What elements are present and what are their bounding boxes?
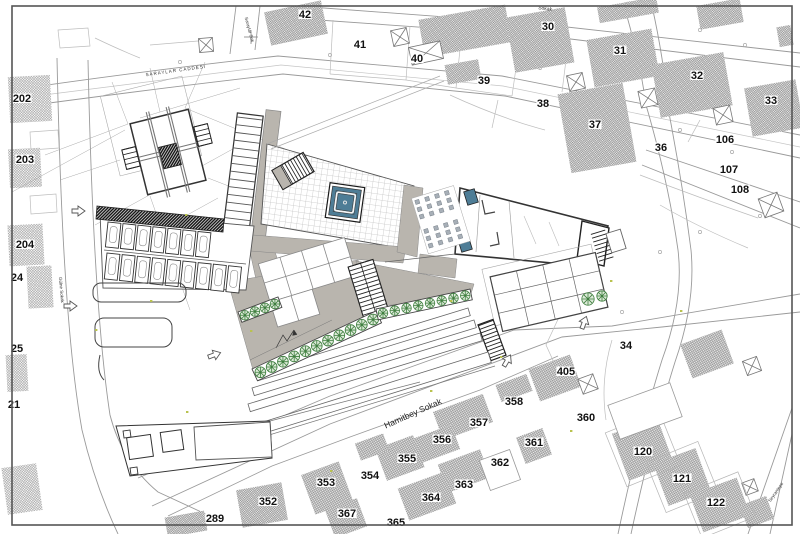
svg-text:120: 120 bbox=[634, 446, 652, 458]
svg-text:353: 353 bbox=[317, 477, 335, 489]
svg-text:352: 352 bbox=[259, 496, 277, 508]
svg-text:107: 107 bbox=[720, 164, 738, 176]
svg-text:36: 36 bbox=[655, 142, 667, 154]
svg-text:203: 203 bbox=[16, 154, 34, 166]
svg-text:289: 289 bbox=[206, 513, 224, 525]
svg-text:42: 42 bbox=[299, 9, 311, 21]
svg-text:357: 357 bbox=[470, 417, 488, 429]
svg-text:24: 24 bbox=[11, 272, 24, 284]
svg-text:32: 32 bbox=[691, 70, 703, 82]
svg-text:405: 405 bbox=[557, 366, 575, 378]
svg-text:34: 34 bbox=[620, 340, 633, 352]
svg-text:354: 354 bbox=[361, 470, 380, 482]
svg-text:38: 38 bbox=[537, 98, 549, 110]
svg-text:361: 361 bbox=[525, 437, 543, 449]
svg-text:33: 33 bbox=[765, 95, 777, 107]
svg-text:31: 31 bbox=[614, 45, 626, 57]
svg-text:21: 21 bbox=[8, 399, 20, 411]
svg-text:204: 204 bbox=[16, 239, 35, 251]
svg-text:108: 108 bbox=[731, 184, 749, 196]
svg-text:363: 363 bbox=[455, 479, 473, 491]
svg-text:41: 41 bbox=[354, 39, 366, 51]
svg-text:37: 37 bbox=[589, 119, 601, 131]
svg-text:365: 365 bbox=[387, 517, 405, 529]
svg-text:121: 121 bbox=[673, 473, 691, 485]
svg-text:362: 362 bbox=[491, 457, 509, 469]
svg-text:364: 364 bbox=[422, 492, 441, 504]
svg-text:355: 355 bbox=[398, 453, 416, 465]
svg-text:106: 106 bbox=[716, 134, 734, 146]
svg-text:358: 358 bbox=[505, 396, 523, 408]
svg-text:202: 202 bbox=[13, 93, 31, 105]
svg-text:367: 367 bbox=[338, 508, 356, 520]
svg-text:40: 40 bbox=[411, 53, 423, 65]
svg-text:39: 39 bbox=[478, 75, 490, 87]
svg-text:30: 30 bbox=[542, 21, 554, 33]
svg-text:360: 360 bbox=[577, 412, 595, 424]
svg-text:122: 122 bbox=[707, 497, 725, 509]
svg-text:356: 356 bbox=[433, 434, 451, 446]
